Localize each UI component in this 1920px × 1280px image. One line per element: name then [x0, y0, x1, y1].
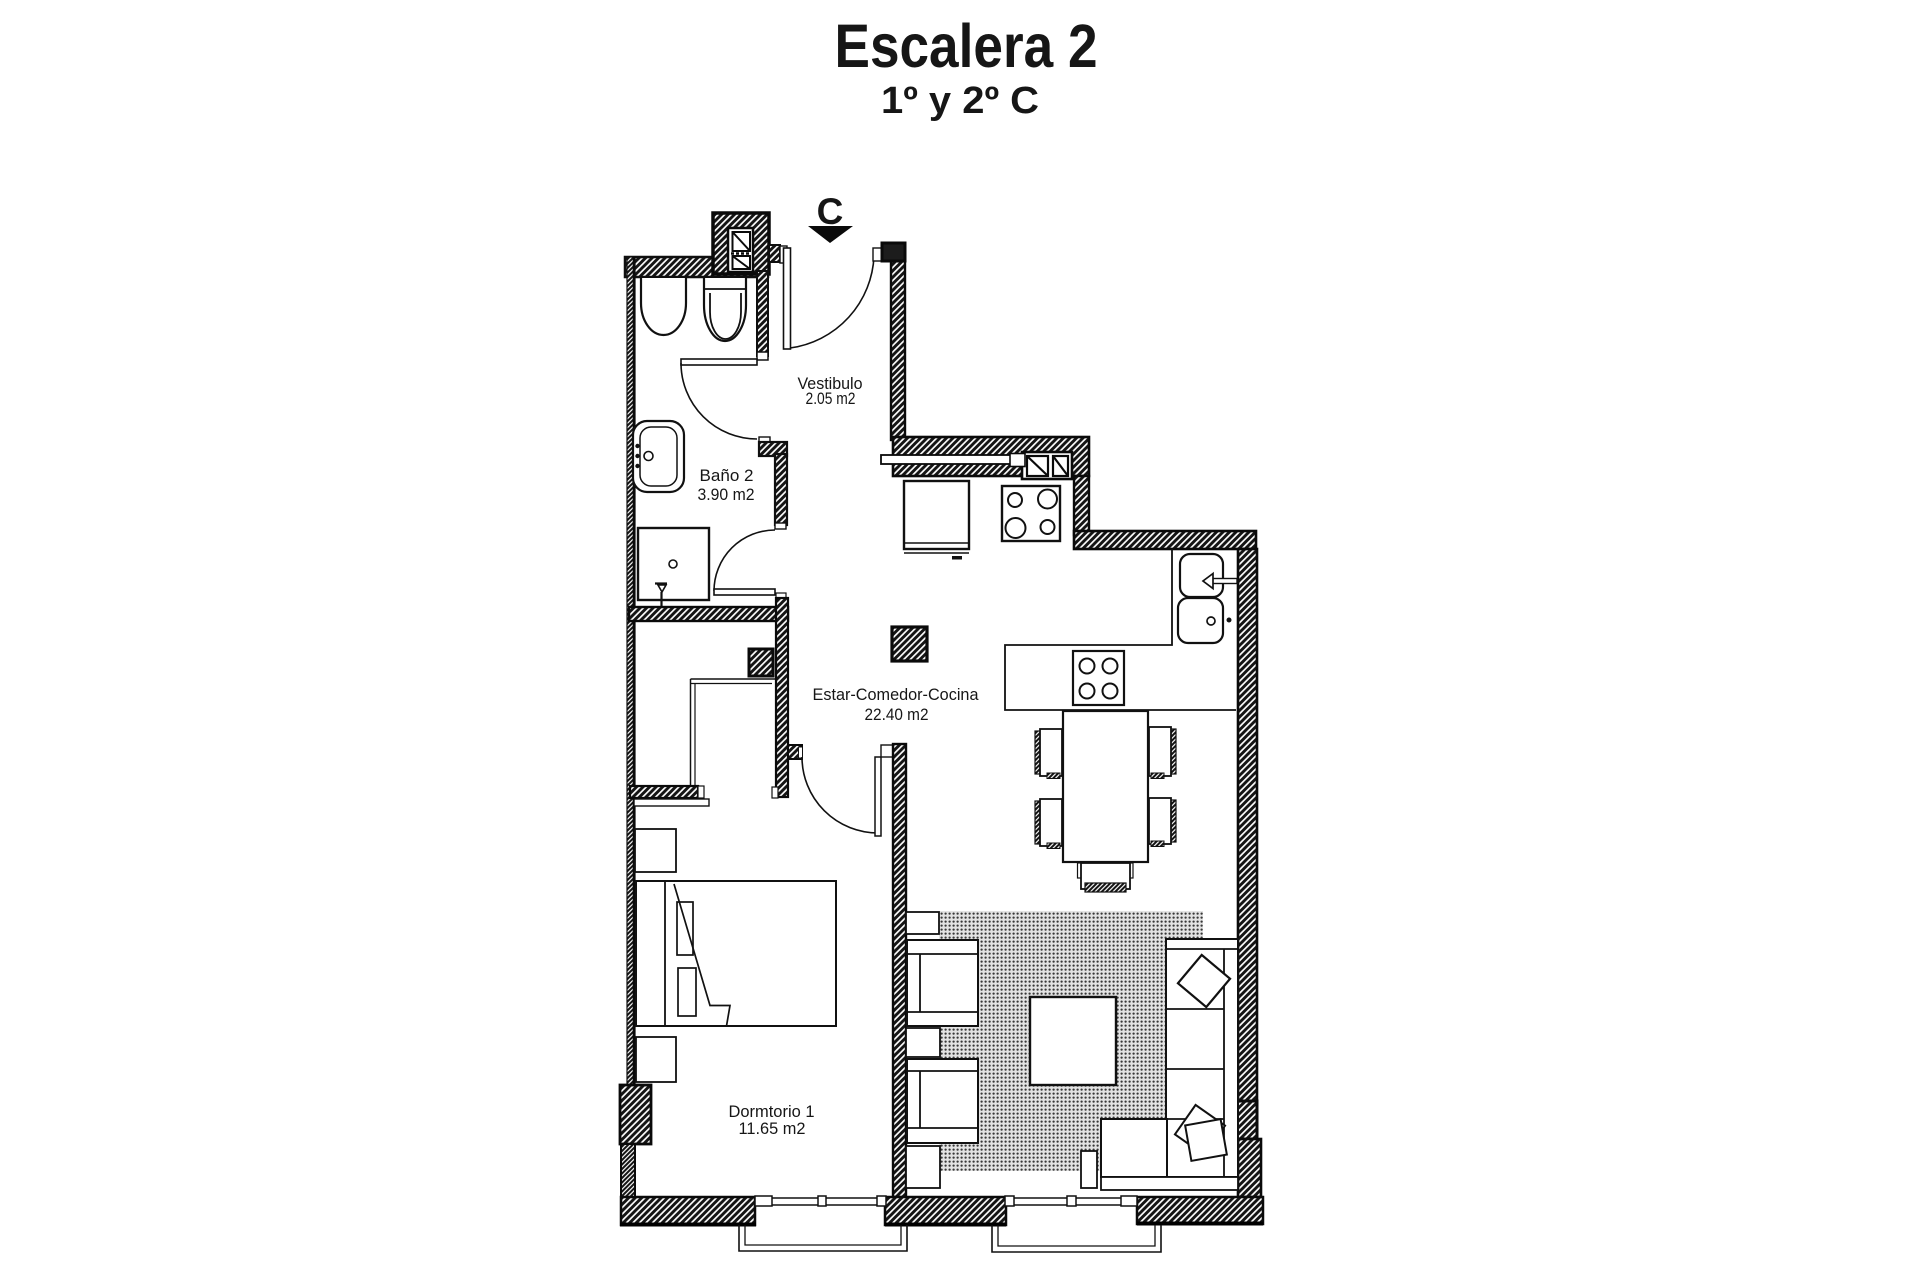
svg-text:Escalera 2: Escalera 2: [835, 12, 1098, 80]
svg-text:Dormtorio 1: Dormtorio 1: [729, 1103, 815, 1121]
svg-text:Baño 2: Baño 2: [700, 467, 754, 485]
svg-text:3.90 m2: 3.90 m2: [698, 486, 755, 504]
svg-text:Estar-Comedor-Cocina: Estar-Comedor-Cocina: [813, 686, 980, 704]
svg-text:11.65 m2: 11.65 m2: [739, 1120, 806, 1138]
svg-text:22.40 m2: 22.40 m2: [865, 706, 929, 724]
svg-text:1º y 2º C: 1º y 2º C: [881, 80, 1039, 122]
svg-text:2.05 m2: 2.05 m2: [806, 390, 856, 408]
svg-text:C: C: [817, 191, 844, 232]
